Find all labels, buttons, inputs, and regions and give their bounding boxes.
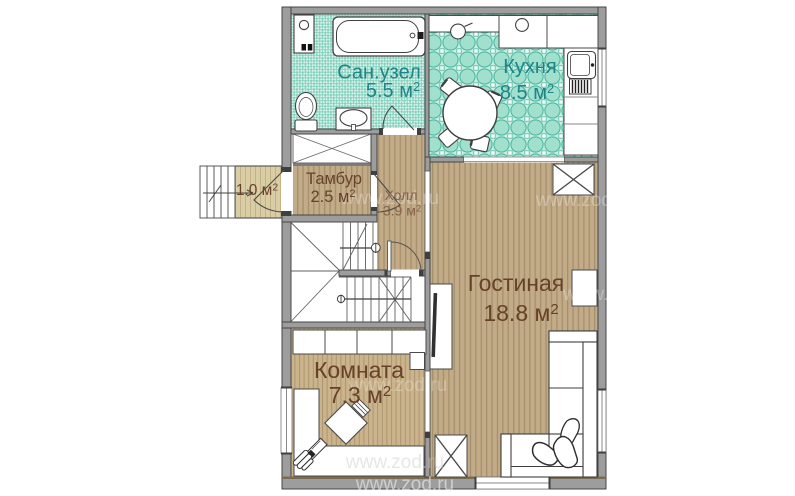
- svg-text:5.5 м2: 5.5 м2: [366, 79, 420, 102]
- svg-text:Кухня: Кухня: [503, 56, 557, 78]
- svg-text:Комната: Комната: [314, 357, 404, 383]
- svg-text:www.zod.ru: www.zod.ru: [562, 284, 661, 305]
- svg-text:2.5 м2: 2.5 м2: [311, 188, 356, 206]
- svg-text:8.5 м2: 8.5 м2: [500, 81, 554, 104]
- svg-text:7.3 м2: 7.3 м2: [329, 382, 392, 408]
- svg-text:1.0 м2: 1.0 м2: [236, 182, 279, 200]
- svg-text:Гостиная: Гостиная: [468, 270, 565, 296]
- svg-text:Холл: Холл: [385, 187, 418, 203]
- svg-text:www.zod.ru: www.zod.ru: [345, 452, 444, 473]
- svg-text:www.zod.ru: www.zod.ru: [355, 474, 454, 495]
- svg-text:3.9 м2: 3.9 м2: [383, 203, 421, 219]
- svg-text:Тамбур: Тамбур: [306, 170, 362, 188]
- svg-text:18.8 м2: 18.8 м2: [483, 300, 558, 326]
- svg-text:www.zod.ru: www.zod.ru: [535, 190, 634, 211]
